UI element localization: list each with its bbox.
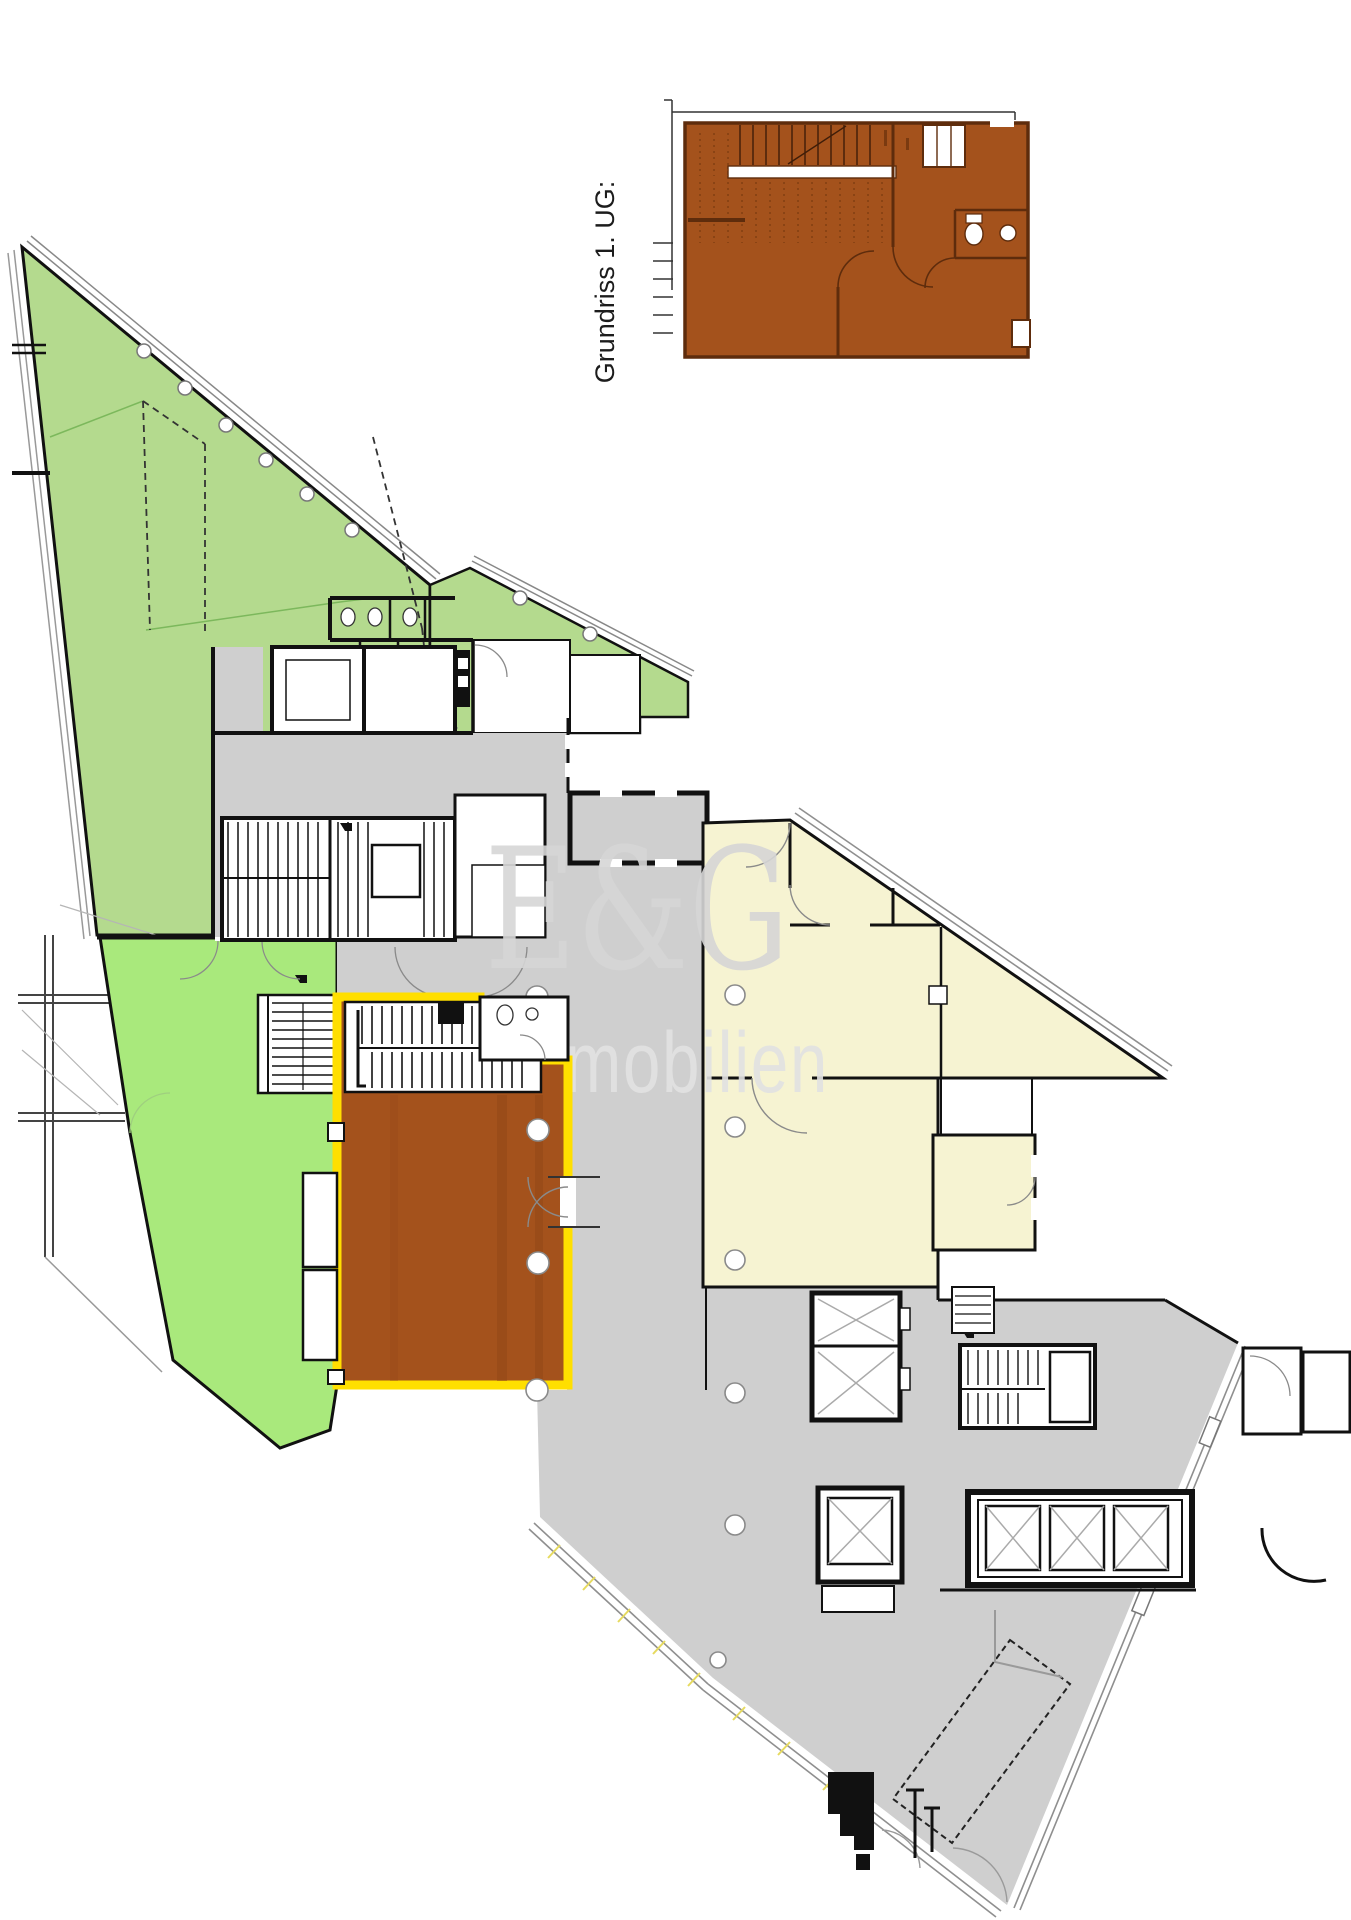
inset-caption: Grundriss 1. UG: (590, 181, 620, 384)
floor-plan-canvas: E&G Immobilien (0, 0, 1351, 1920)
wc-room (480, 997, 568, 1060)
inset-plan: Grundriss 1. UG: (590, 100, 1030, 383)
main-plan: E&G Immobilien (8, 236, 1350, 1917)
floorplan-page: E&G Immobilien (0, 0, 1351, 1920)
watermark-brand: E&G (485, 812, 790, 1008)
